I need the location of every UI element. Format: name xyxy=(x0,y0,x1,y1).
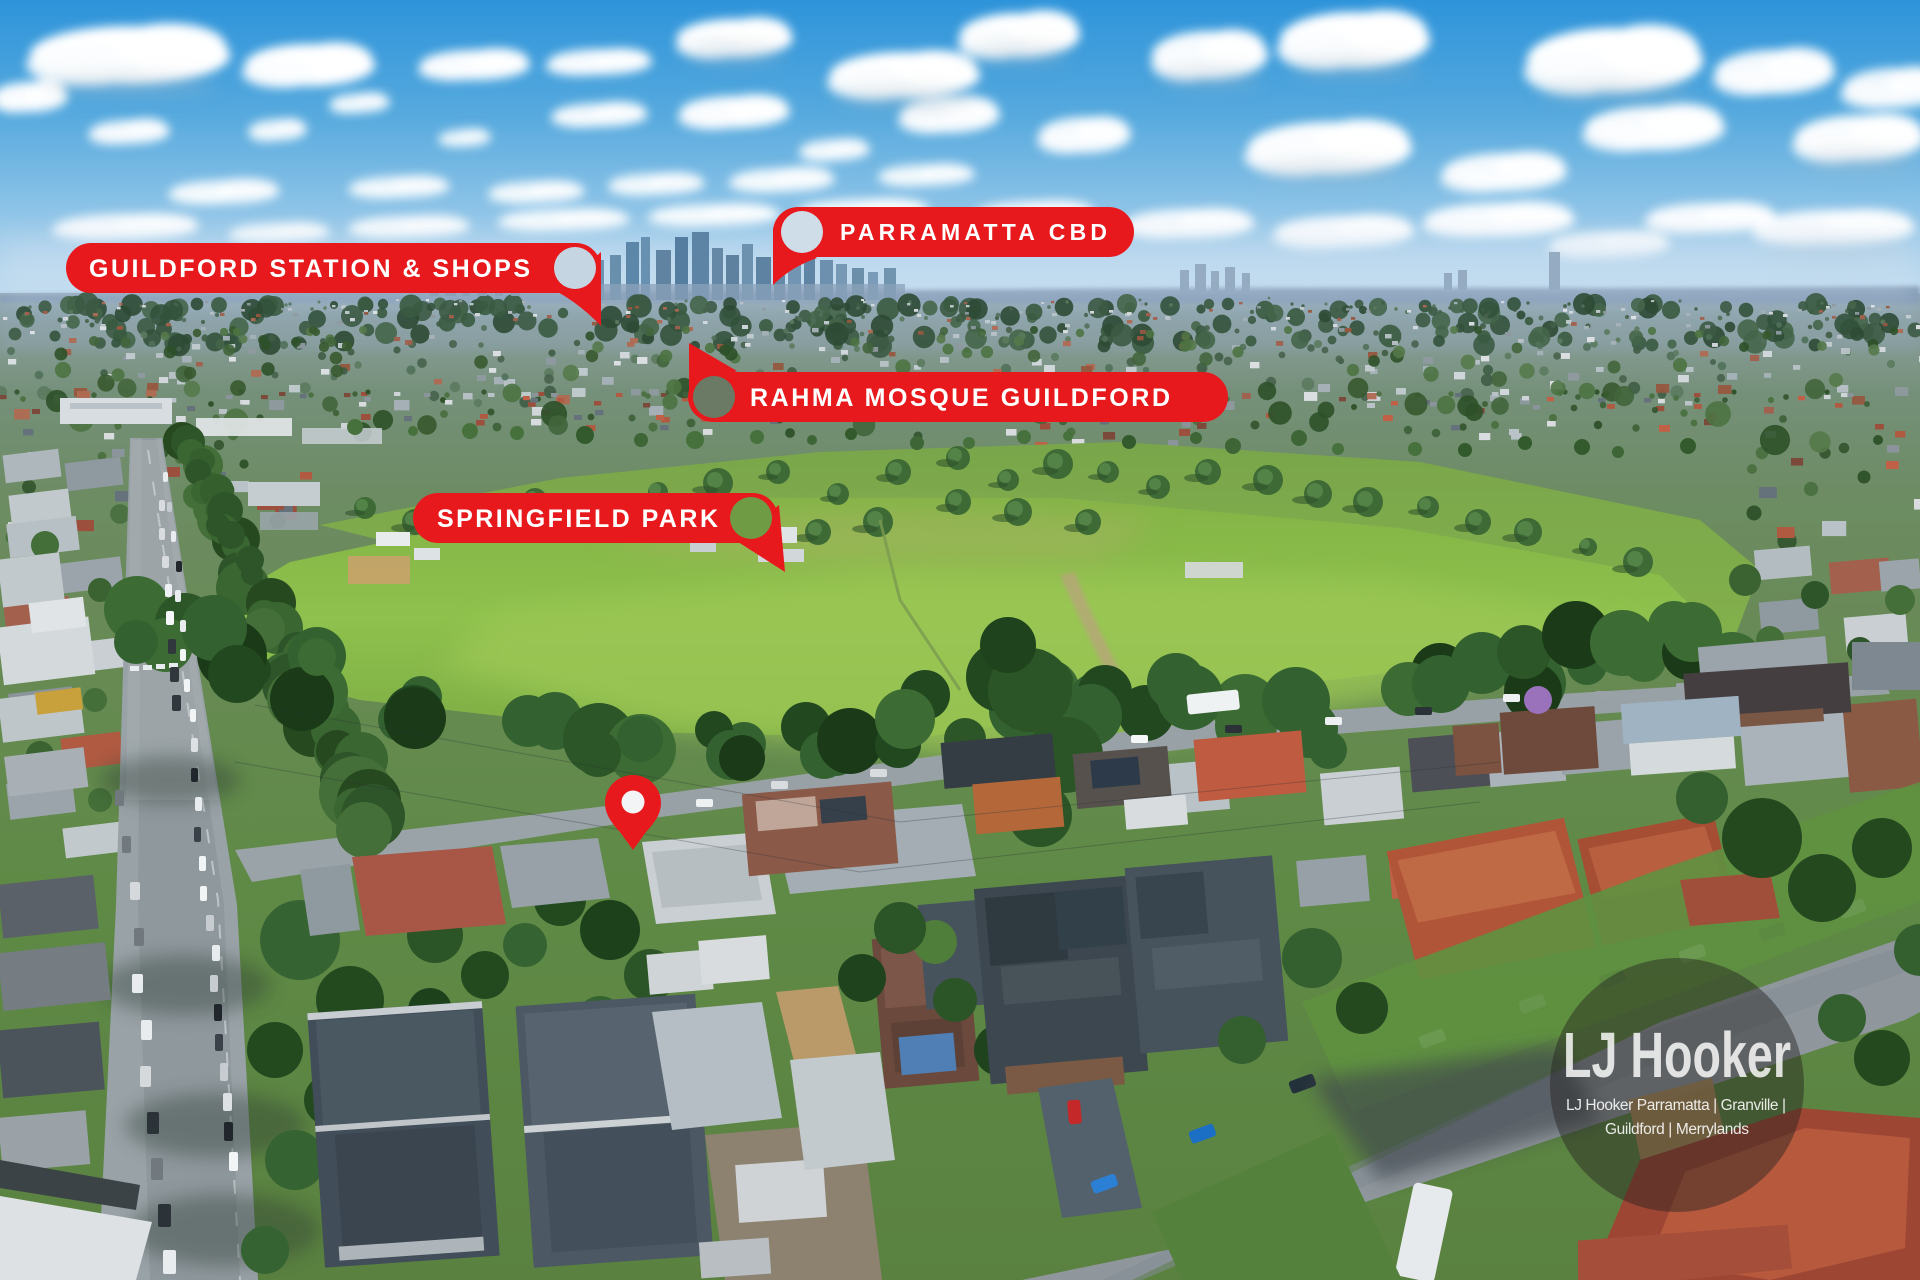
svg-text:GUILDFORD STATION & SHOPS: GUILDFORD STATION & SHOPS xyxy=(89,255,530,283)
svg-text:LJ Hooker Parramatta | Granvil: LJ Hooker Parramatta | Granville | xyxy=(1566,1097,1786,1114)
svg-text:Guildford | Merrylands: Guildford | Merrylands xyxy=(1605,1121,1749,1138)
svg-text:SPRINGFIELD PARK: SPRINGFIELD PARK xyxy=(437,505,718,533)
svg-text:LJ Hooker: LJ Hooker xyxy=(1563,1019,1791,1091)
